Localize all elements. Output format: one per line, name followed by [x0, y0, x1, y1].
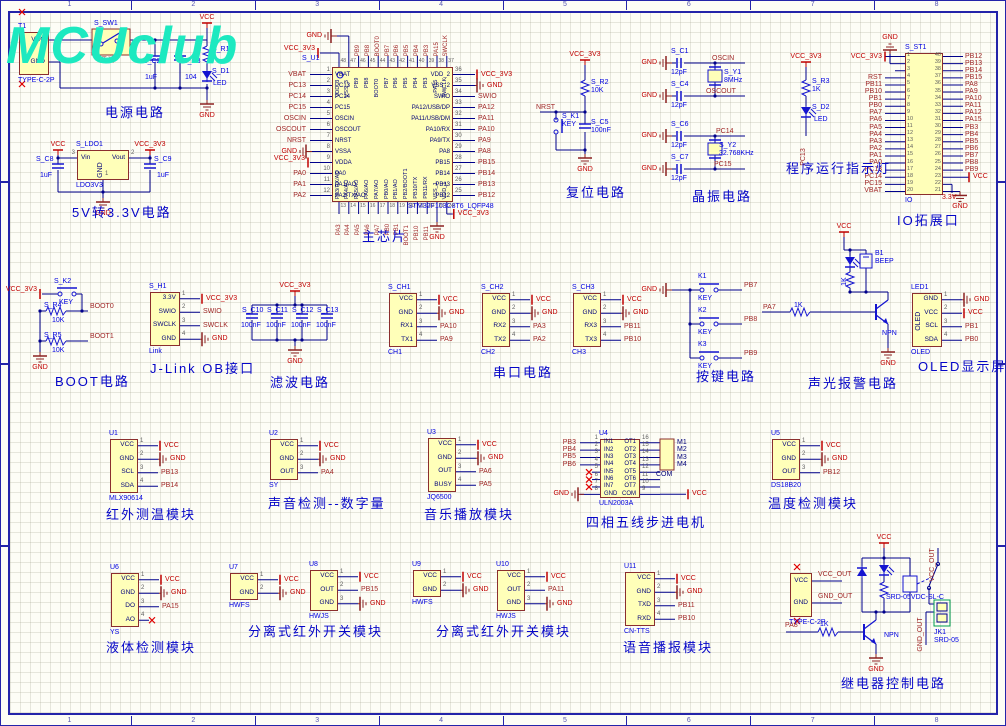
capacitor[interactable]	[246, 314, 258, 318]
pin-number[interactable]: 15	[360, 204, 366, 209]
component-designator[interactable]: S_C6	[671, 121, 689, 128]
ground-label[interactable]: GND	[860, 666, 892, 673]
pin-name[interactable]: SWCLK	[153, 322, 176, 329]
pin-number[interactable]: 1	[588, 435, 598, 441]
pin-number[interactable]: 2	[300, 451, 303, 457]
pin-number[interactable]: 30	[927, 124, 941, 130]
pin-number[interactable]: 22	[429, 204, 435, 209]
component-designator[interactable]: S_C11	[267, 307, 288, 314]
net-label[interactable]: PB6	[540, 461, 576, 468]
pin-name[interactable]: GND	[273, 456, 294, 463]
pin-number[interactable]: 33	[455, 100, 462, 106]
pin-number[interactable]: 1	[182, 291, 185, 297]
pin-name[interactable]: PB4	[414, 70, 420, 88]
ground-label[interactable]: GND	[620, 286, 657, 293]
net-label[interactable]: NRST	[266, 137, 306, 144]
pin-name[interactable]: RXD	[628, 616, 651, 623]
ground-symbol[interactable]	[158, 452, 166, 466]
ground-symbol[interactable]	[660, 129, 672, 143]
ground-symbol[interactable]	[358, 597, 366, 611]
power-label[interactable]: VCC_3V3	[560, 51, 610, 58]
net-label[interactable]: PA6	[479, 468, 492, 475]
component-designator[interactable]: SRD-05	[934, 637, 959, 644]
pin-number[interactable]: 31	[927, 117, 941, 123]
pin-number[interactable]: 2	[527, 582, 530, 588]
net-label[interactable]: PB9	[355, 37, 361, 56]
pin-number[interactable]: 35	[927, 89, 941, 95]
pin-number[interactable]: 1	[419, 292, 422, 298]
pin-number[interactable]: 32	[455, 111, 462, 117]
pin-name[interactable]: GND	[153, 336, 176, 343]
pin-number[interactable]: 19	[399, 204, 405, 209]
net-label[interactable]: SWCLK	[443, 27, 449, 57]
component-designator[interactable]: K1	[698, 273, 707, 280]
pin-name[interactable]: PB3	[424, 70, 430, 88]
pin-name[interactable]: PA10/RX	[395, 127, 450, 133]
power-label[interactable]: VCC	[692, 490, 707, 497]
capacitor[interactable]	[677, 58, 681, 68]
pin-number[interactable]: 40	[927, 53, 941, 59]
component-designator[interactable]: S_R3	[812, 78, 830, 85]
pin-number[interactable]: 4	[603, 332, 606, 338]
pin-number[interactable]: 3	[512, 319, 515, 325]
pin-number[interactable]: 48	[341, 59, 347, 64]
power-port[interactable]	[53, 150, 63, 155]
pin-number[interactable]: 11	[312, 177, 330, 183]
ground-label[interactable]: GND	[620, 165, 657, 172]
component-designator[interactable]: S_R5	[44, 332, 62, 339]
component-subtitle[interactable]: TYPE-C-2P	[789, 619, 826, 626]
net-label[interactable]: PB8	[744, 316, 757, 323]
component-designator[interactable]: LED1	[911, 284, 929, 291]
pin-number[interactable]: 18	[907, 174, 913, 180]
relay-coil[interactable]	[903, 576, 917, 592]
component-designator[interactable]: S_K2	[54, 278, 71, 285]
component-subtitle[interactable]: YS	[110, 629, 119, 636]
pin-name[interactable]: VCC	[313, 573, 334, 580]
pin-name[interactable]: OT7	[603, 483, 636, 489]
ground-label[interactable]: GND	[473, 586, 489, 593]
net-label[interactable]: PC15	[714, 161, 732, 168]
key-switch[interactable]	[699, 284, 719, 292]
pin-name[interactable]: TX1	[392, 337, 413, 344]
component-value[interactable]: 1K	[841, 270, 848, 286]
ground-label[interactable]: GND	[532, 490, 569, 497]
pin-number[interactable]: 1	[603, 292, 606, 298]
ground-symbol[interactable]	[660, 89, 672, 103]
ground-symbol[interactable]	[200, 100, 214, 110]
power-label[interactable]: VCC_3V3	[125, 141, 175, 148]
pin-number[interactable]: 1	[907, 53, 910, 59]
pin-name[interactable]: PA9/TX	[395, 138, 450, 144]
net-label[interactable]: PA12	[478, 104, 495, 111]
pin-name[interactable]: VCC	[576, 296, 597, 303]
pin-name[interactable]: M2	[677, 446, 687, 453]
pin-number[interactable]: 5	[312, 111, 330, 117]
component-value[interactable]: KEY	[698, 295, 712, 302]
pin-number[interactable]: 17	[907, 167, 913, 173]
pin-name[interactable]: COM	[603, 491, 636, 497]
pin-number[interactable]: 10	[907, 117, 913, 123]
pin-name[interactable]: VCC	[392, 296, 413, 303]
component-designator[interactable]: S_K1	[562, 113, 579, 120]
pin-number[interactable]: 25	[927, 160, 941, 166]
pin-name[interactable]: OT4	[603, 461, 636, 467]
power-port[interactable]	[290, 291, 300, 296]
net-label[interactable]: VCC_OUT	[929, 536, 936, 582]
power-label[interactable]: 3.3V	[942, 194, 956, 201]
ground-symbol[interactable]	[461, 583, 469, 597]
pin-number[interactable]: 25	[455, 188, 462, 194]
pin-name[interactable]: GND	[431, 455, 452, 462]
pin-number[interactable]: 2	[588, 442, 598, 448]
pin-name[interactable]: Vout	[80, 155, 125, 162]
net-label[interactable]: PA15	[434, 32, 440, 56]
ground-symbol[interactable]	[621, 306, 629, 320]
pin-name[interactable]: PB1/AO	[394, 167, 400, 199]
net-label[interactable]: PB7	[744, 282, 757, 289]
pin-number[interactable]: 22	[927, 181, 941, 187]
pin-name[interactable]: 3.3V	[153, 295, 176, 302]
component-value[interactable]: 1K	[812, 86, 821, 93]
pin-number[interactable]: 3	[182, 318, 185, 324]
net-label[interactable]: PC15	[266, 104, 306, 111]
power-label[interactable]: VCC	[443, 296, 458, 303]
pin-number[interactable]: 13	[907, 138, 913, 144]
power-label[interactable]: VCC_3V3	[270, 45, 315, 52]
ground-label[interactable]: GND	[872, 360, 904, 367]
net-label[interactable]: PB3	[424, 37, 430, 56]
pin-name[interactable]: OT2	[603, 447, 636, 453]
pin-name[interactable]: RX3	[576, 323, 597, 330]
net-label[interactable]: PB14	[478, 170, 495, 177]
net-label[interactable]: PA7	[763, 304, 776, 311]
pin-name[interactable]: VCC	[775, 442, 796, 449]
pin-number[interactable]: 44	[380, 59, 386, 64]
pin-number[interactable]: 33	[927, 103, 941, 109]
pin-number[interactable]: 10	[312, 166, 330, 172]
ground-symbol[interactable]	[675, 585, 683, 599]
ground-label[interactable]: GND	[285, 32, 322, 39]
pin-name[interactable]: VCC	[628, 575, 651, 582]
pin-number[interactable]: 42	[399, 59, 405, 64]
component-subtitle[interactable]: TYPE-C-2P	[18, 77, 55, 84]
pin-name[interactable]: GND	[500, 600, 521, 607]
net-label[interactable]: PB11	[678, 602, 695, 609]
ground-label[interactable]: GND	[620, 59, 657, 66]
component-designator[interactable]: K3	[698, 341, 707, 348]
component-subtitle[interactable]: OLED	[911, 349, 930, 356]
power-label[interactable]: VCC_3V3	[260, 155, 305, 162]
pin-name[interactable]: TXD	[628, 602, 651, 609]
component-subtitle[interactable]: Link	[149, 348, 162, 355]
ground-symbol[interactable]	[318, 452, 326, 466]
pin-name[interactable]: BUSY	[431, 482, 452, 489]
pin-name[interactable]: OT5	[603, 469, 636, 475]
pin-name[interactable]: VCC	[113, 442, 134, 449]
net-label[interactable]: PA5	[355, 216, 361, 235]
power-label[interactable]: VCC_3V3	[0, 286, 37, 293]
pin-number[interactable]: 29	[455, 144, 462, 150]
pin-number[interactable]: 27	[455, 166, 462, 172]
pin-number[interactable]: 1	[312, 67, 330, 73]
component-subtitle[interactable]: DS18B20	[771, 482, 801, 489]
pin-number[interactable]: 14	[350, 204, 356, 209]
pin-number[interactable]: 4	[657, 611, 660, 617]
pin-name[interactable]: PB6	[394, 70, 400, 88]
net-label[interactable]: PA11	[548, 586, 564, 593]
pin-number[interactable]: 5	[907, 81, 910, 87]
pin-number[interactable]: 4	[419, 332, 422, 338]
ground-label[interactable]: GND	[620, 132, 657, 139]
net-label[interactable]: PB6	[394, 37, 400, 56]
ground-symbol[interactable]	[545, 597, 553, 611]
net-label[interactable]: GND_OUT	[818, 593, 852, 600]
component-designator[interactable]: S_R2	[591, 79, 609, 86]
net-label[interactable]: PA2	[266, 192, 306, 199]
ground-symbol[interactable]	[33, 352, 47, 362]
component-designator[interactable]: U2	[269, 430, 278, 437]
net-label[interactable]: PA3	[336, 216, 342, 235]
component-designator[interactable]: S_C9	[154, 156, 172, 163]
power-label[interactable]: VCC	[324, 442, 339, 449]
net-label[interactable]: PA8	[478, 148, 491, 155]
pin-number[interactable]: 16	[370, 204, 376, 209]
component-designator[interactable]: S_C5	[591, 119, 609, 126]
pin-number[interactable]: 4	[944, 332, 947, 338]
pin-name[interactable]: VDD_1	[443, 172, 449, 199]
power-port[interactable]	[839, 232, 849, 237]
component-value[interactable]: 10K	[52, 317, 64, 324]
pin-number[interactable]: 9	[642, 486, 645, 492]
power-label[interactable]: VCC	[364, 573, 379, 580]
pin-name[interactable]: PB7	[385, 70, 391, 88]
component-value[interactable]: 12pF	[671, 175, 687, 182]
pin-name[interactable]: OUT	[431, 468, 452, 475]
pin-number[interactable]: 1	[657, 571, 660, 577]
pin-number[interactable]: 37	[448, 59, 454, 64]
power-label[interactable]: VCC_3V3	[845, 53, 882, 60]
pin-number[interactable]: 1	[140, 438, 143, 444]
pin-number[interactable]: 1	[340, 569, 343, 575]
ground-symbol[interactable]	[278, 586, 286, 600]
ground-label[interactable]: GND	[290, 589, 306, 596]
net-label[interactable]: PB13	[478, 181, 495, 188]
pin-name[interactable]: GND	[233, 590, 254, 597]
component-designator[interactable]: S_C12	[292, 307, 313, 314]
pin-number[interactable]: 4	[907, 74, 910, 80]
pin-number[interactable]: 8	[588, 486, 598, 492]
component-value[interactable]: 100nF	[291, 322, 311, 329]
pin-number[interactable]: 1	[527, 569, 530, 575]
pin-number[interactable]: 38	[439, 59, 445, 64]
net-label[interactable]: GND_OUT	[917, 606, 924, 652]
capacitor[interactable]	[296, 314, 308, 318]
net-label[interactable]: PB0	[965, 336, 978, 343]
pin-name[interactable]: GND	[485, 310, 506, 317]
ground-symbol[interactable]	[962, 293, 970, 307]
pin-number[interactable]: 3	[527, 596, 530, 602]
pin-number[interactable]: 2	[944, 305, 947, 311]
power-label[interactable]: VCC	[482, 441, 497, 448]
pin-number[interactable]: 2	[260, 585, 263, 591]
pin-name[interactable]: VCC	[500, 573, 521, 580]
pin-name[interactable]: OT6	[603, 476, 636, 482]
pin-number[interactable]: 3	[140, 465, 143, 471]
motor-connector[interactable]	[660, 439, 674, 470]
pin-name[interactable]: COM	[656, 471, 672, 478]
pin-number[interactable]: 3	[458, 464, 461, 470]
pin-number[interactable]: 24	[448, 204, 454, 209]
net-label[interactable]: PB5	[540, 453, 576, 460]
net-label[interactable]: PA9	[478, 137, 491, 144]
pin-name[interactable]: VCC	[273, 442, 294, 449]
net-label[interactable]: PB7	[385, 37, 391, 56]
ground-label[interactable]: GND	[212, 335, 228, 342]
pin-number[interactable]: 6	[907, 89, 910, 95]
pin-number[interactable]: 12	[312, 188, 330, 194]
ground-label[interactable]: GND	[944, 203, 976, 210]
pin-name[interactable]: SWIO	[153, 309, 176, 316]
component-subtitle[interactable]: SY	[269, 482, 278, 489]
pin-name[interactable]: OT1	[603, 439, 636, 445]
ground-symbol[interactable]	[200, 332, 208, 346]
pin-number[interactable]: 39	[927, 60, 941, 66]
pin-name[interactable]: SWCLK	[443, 70, 449, 97]
component-subtitle[interactable]: HWFS	[229, 602, 250, 609]
pin-number[interactable]: 1	[802, 438, 805, 444]
pin-number[interactable]: 2	[907, 60, 910, 66]
component-designator[interactable]: U10	[496, 561, 509, 568]
pin-name[interactable]: OSCIN	[335, 116, 354, 122]
pin-number[interactable]: 17	[380, 204, 386, 209]
capacitor[interactable]	[321, 314, 333, 318]
diode[interactable]	[857, 566, 867, 578]
pin-number[interactable]: 27	[927, 145, 941, 151]
resistor[interactable]	[581, 80, 589, 96]
pin-number[interactable]: 3	[65, 150, 75, 156]
component-subtitle[interactable]: IO	[905, 197, 912, 204]
pin-name[interactable]: VCC	[431, 441, 452, 448]
net-label[interactable]: OSCIN	[266, 115, 306, 122]
power-port[interactable]	[145, 150, 155, 155]
capacitor[interactable]	[677, 131, 681, 141]
pin-name[interactable]: OUT	[273, 469, 294, 476]
ground-label[interactable]: GND	[191, 112, 223, 119]
component-subtitle[interactable]: CN-TTS	[624, 628, 650, 635]
pin-number[interactable]: 2	[512, 305, 515, 311]
component-value[interactable]: NPN	[884, 632, 899, 639]
led[interactable]	[879, 564, 894, 576]
capacitor[interactable]	[144, 164, 156, 168]
pin-number[interactable]: 4	[458, 477, 461, 483]
pin-name[interactable]: TX2	[485, 337, 506, 344]
net-label[interactable]: VBAT	[266, 71, 306, 78]
component-designator[interactable]: U8	[309, 561, 318, 568]
net-label[interactable]: PA10	[440, 323, 457, 330]
net-label[interactable]: PB1	[965, 323, 978, 330]
component-value[interactable]: 100nF	[316, 322, 336, 329]
pin-number[interactable]: 3	[141, 599, 144, 605]
component-value[interactable]: 12pF	[671, 102, 687, 109]
net-label[interactable]: PA11	[478, 115, 494, 122]
component-value[interactable]: 8MHz	[724, 77, 742, 84]
pin-number[interactable]: 26	[455, 177, 462, 183]
pin-name[interactable]: NRST	[335, 138, 351, 144]
pin-name[interactable]: OUT	[313, 587, 334, 594]
net-label[interactable]: PB10	[414, 216, 420, 240]
pin-name[interactable]: GND	[113, 456, 134, 463]
component-designator[interactable]: S_C10	[242, 307, 263, 314]
pin-number[interactable]: 2	[603, 305, 606, 311]
pin-number[interactable]: 38	[927, 67, 941, 73]
pin-number[interactable]: 15	[642, 442, 649, 448]
ground-label[interactable]: GND	[171, 589, 187, 596]
component-designator[interactable]: S_U1	[302, 55, 320, 62]
capacitor[interactable]	[579, 124, 591, 128]
pin-number[interactable]: 24	[927, 167, 941, 173]
pin-name[interactable]: PB0/AO	[385, 167, 391, 199]
pin-number[interactable]: 14	[642, 449, 649, 455]
power-port[interactable]	[580, 60, 590, 65]
pin-name[interactable]: PA5/AO	[355, 167, 361, 199]
capacitor[interactable]	[677, 91, 681, 101]
net-label[interactable]: OSCOUT	[706, 88, 736, 95]
component-designator[interactable]: S_CH3	[572, 284, 595, 291]
ground-label[interactable]: GND	[542, 309, 558, 316]
pin-number[interactable]: 32	[927, 110, 941, 116]
component-designator[interactable]: S_R4	[44, 302, 62, 309]
pin-number[interactable]: 4	[140, 478, 143, 484]
pin-number[interactable]: 28	[455, 155, 462, 161]
pin-number[interactable]: 3	[588, 449, 598, 455]
pin-number[interactable]: 3	[419, 319, 422, 325]
component-value[interactable]: KEY	[562, 121, 576, 128]
resistor[interactable]	[818, 628, 838, 636]
net-label[interactable]: VCC_OUT	[818, 571, 851, 578]
no-connect-marker[interactable]	[149, 617, 155, 623]
power-port[interactable]	[801, 62, 811, 67]
power-label[interactable]: VCC_3V3	[206, 295, 237, 302]
pin-number[interactable]: 12	[642, 464, 649, 470]
pin-number[interactable]: 43	[390, 59, 396, 64]
ground-label[interactable]: GND	[330, 455, 346, 462]
pin-number[interactable]: 1	[443, 569, 446, 575]
pin-number[interactable]: 29	[927, 131, 941, 137]
component-designator[interactable]: S_C1	[671, 48, 689, 55]
capacitor[interactable]	[271, 314, 283, 318]
ground-label[interactable]: GND	[687, 588, 703, 595]
component-subtitle[interactable]: HWJS	[309, 613, 329, 620]
net-label[interactable]: PA4	[345, 216, 351, 235]
pin-name[interactable]: PC15	[335, 105, 350, 111]
component-subtitle[interactable]: MLX90614	[109, 495, 143, 502]
ground-symbol[interactable]	[430, 222, 444, 232]
component-value[interactable]: 100nF	[591, 127, 611, 134]
pin-name[interactable]: PA11/USB/DM	[395, 116, 450, 122]
pin-number[interactable]: 4	[312, 100, 330, 106]
net-label[interactable]: PB10	[678, 615, 695, 622]
pin-number[interactable]: 2	[141, 585, 144, 591]
net-label[interactable]: NRST	[536, 104, 555, 111]
power-label[interactable]: VCC	[627, 296, 642, 303]
power-label[interactable]: VCC	[859, 534, 909, 541]
component-designator[interactable]: S_C8	[36, 156, 54, 163]
ground-label[interactable]: GND	[974, 296, 990, 303]
ground-symbol[interactable]	[660, 56, 672, 70]
component-designator[interactable]: S_C7	[671, 154, 689, 161]
pin-name[interactable]: GND	[915, 296, 938, 303]
